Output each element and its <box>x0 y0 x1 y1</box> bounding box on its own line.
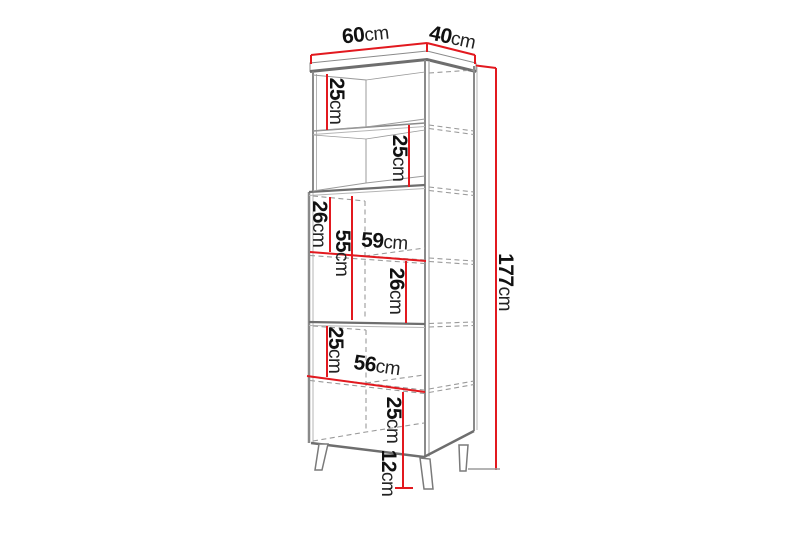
label-top-depth: 40cm <box>427 22 477 54</box>
cabinet-leg-left <box>315 444 328 470</box>
dimension-labels: 60cm 40cm 25cm 25cm 26cm 55cm 59cm 26cm … <box>308 21 517 497</box>
label-shelf-top-a: 25cm <box>325 78 348 125</box>
furniture-dimension-diagram: 60cm 40cm 25cm 25cm 26cm 55cm 59cm 26cm … <box>0 0 800 533</box>
label-top-width: 60cm <box>341 21 390 49</box>
label-shelf-low-a: 25cm <box>324 327 347 374</box>
cabinet-leg-right <box>459 445 468 471</box>
label-shelf-low-b: 25cm <box>382 397 405 444</box>
cabinet-diagram-canvas: 60cm 40cm 25cm 25cm 26cm 55cm 59cm 26cm … <box>0 0 800 533</box>
label-door-height: 55cm <box>331 230 354 277</box>
label-shelf-mid-a: 26cm <box>308 201 331 248</box>
label-shelf-top-b: 25cm <box>388 135 411 182</box>
label-leg-height: 12cm <box>377 450 400 497</box>
label-inner-width: 56cm <box>352 351 401 380</box>
label-shelf-mid-b: 26cm <box>385 268 408 315</box>
label-door-width: 59cm <box>360 228 408 254</box>
cabinet-leg-front <box>420 458 433 489</box>
label-total-height: 177cm <box>494 253 517 311</box>
